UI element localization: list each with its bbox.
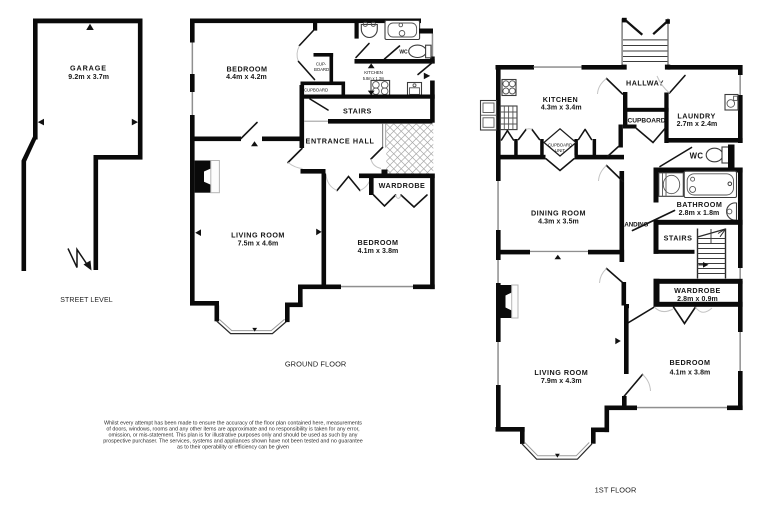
svg-text:CUPBOARD: CUPBOARD (627, 117, 665, 124)
svg-text:as to their operability or eff: as to their operability or efficiency ca… (177, 445, 289, 451)
svg-text:UNIT: UNIT (555, 148, 565, 153)
svg-text:STAIRS: STAIRS (343, 107, 372, 116)
svg-text:9.2m x 3.7m: 9.2m x 3.7m (68, 74, 109, 81)
svg-text:DINING ROOM: DINING ROOM (531, 209, 586, 218)
svg-text:7.5m x 4.6m: 7.5m x 4.6m (238, 241, 279, 248)
svg-text:LIVING ROOM: LIVING ROOM (534, 368, 588, 377)
svg-text:WARDROBE: WARDROBE (674, 286, 721, 295)
svg-text:2.8m x 0.9m: 2.8m x 0.9m (677, 296, 718, 303)
svg-text:4.3m x 3.5m: 4.3m x 3.5m (538, 219, 579, 226)
svg-text:STAIRS: STAIRS (664, 234, 693, 243)
svg-text:1ST FLOOR: 1ST FLOOR (595, 486, 637, 495)
svg-text:4.1m x 3.8m: 4.1m x 3.8m (670, 369, 711, 376)
svg-text:BATHROOM: BATHROOM (677, 200, 723, 209)
svg-text:BEDROOM: BEDROOM (226, 64, 267, 73)
svg-text:CUP-: CUP- (316, 62, 327, 67)
svg-text:LAUNDRY: LAUNDRY (677, 111, 715, 120)
svg-text:WC: WC (399, 49, 408, 55)
svg-text:7.9m x 4.3m: 7.9m x 4.3m (541, 378, 582, 385)
svg-text:GARAGE: GARAGE (70, 64, 107, 73)
svg-text:2.7m x 2.4m: 2.7m x 2.4m (677, 121, 718, 128)
svg-text:4.3m x 3.4m: 4.3m x 3.4m (541, 105, 582, 112)
svg-text:4.4m x 4.2m: 4.4m x 4.2m (226, 74, 267, 81)
svg-text:LANDING: LANDING (621, 221, 649, 228)
svg-text:STREET LEVEL: STREET LEVEL (60, 297, 112, 304)
svg-text:4.1m x 3.8m: 4.1m x 3.8m (358, 248, 399, 255)
svg-text:KITCHEN: KITCHEN (543, 95, 578, 104)
svg-text:CUPBOARD: CUPBOARD (304, 88, 328, 93)
svg-text:ENTRANCE HALL: ENTRANCE HALL (306, 137, 375, 146)
svg-text:BEDROOM: BEDROOM (669, 358, 710, 367)
svg-text:BEDROOM: BEDROOM (357, 238, 398, 247)
svg-text:KITCHEN: KITCHEN (364, 70, 383, 75)
svg-text:CUPBOARD: CUPBOARD (548, 142, 572, 147)
svg-text:2.8m x 1.8m: 2.8m x 1.8m (679, 210, 720, 217)
svg-text:GROUND FLOOR: GROUND FLOOR (285, 359, 347, 368)
svg-text:LIVING ROOM: LIVING ROOM (231, 231, 285, 240)
svg-text:WC: WC (690, 151, 704, 160)
svg-text:WARDROBE: WARDROBE (379, 181, 426, 190)
svg-text:BOARD: BOARD (314, 67, 329, 72)
